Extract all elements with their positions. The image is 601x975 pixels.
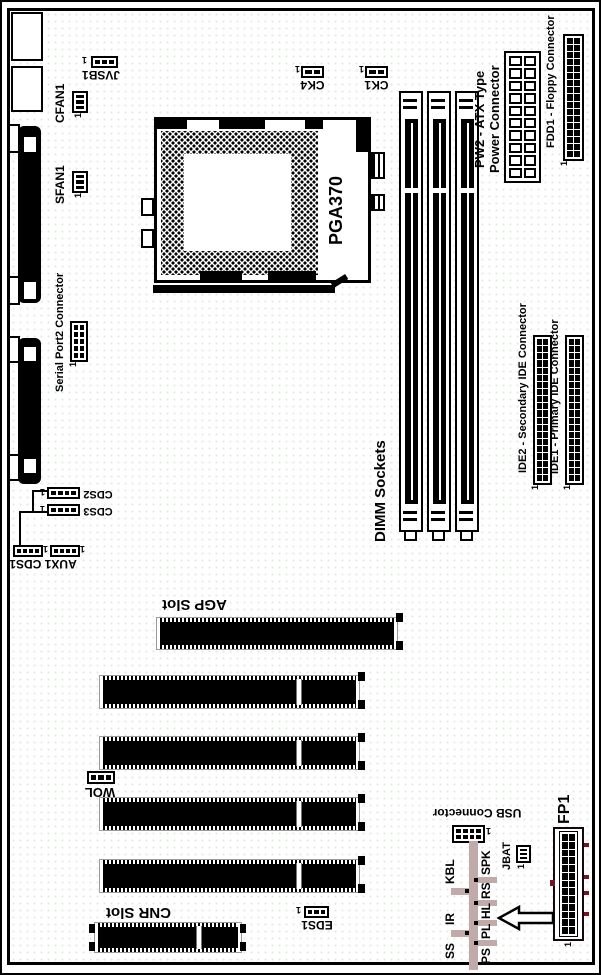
serial-port2-header [70,321,88,362]
wol-header [87,771,115,784]
serial-port2-pin1-marker: 1 [69,362,78,367]
socket-tab [305,117,323,129]
ide1-connector [565,335,584,485]
eds1-label: EDS1 [299,918,335,931]
ck1-label: CK1 [363,78,390,91]
parallel-port [18,126,41,303]
socket-side-tab [371,152,385,179]
dimm-center-line [439,123,441,500]
dimm-clip [431,511,445,514]
ck4-header [301,66,324,78]
slot-endcap [240,924,246,933]
ck1-pin1-marker: 1 [359,64,364,73]
dimm-slot-2 [427,91,451,532]
fp-label-spk: SPK [480,845,496,880]
atx-power-connector [504,51,541,183]
slot-endcap [240,942,246,951]
slot-pins [103,680,356,704]
fp-table-tick [474,941,478,945]
slot-key-notch [296,679,302,705]
bracket-line [32,490,34,513]
ide1-pin1-marker: 1 [563,485,572,490]
socket-tab [356,118,369,152]
socket-tab [268,271,316,281]
fdd1-pin1-marker: 1 [560,161,569,166]
slot-endcap [358,700,365,709]
cfan1-label: CFAN1 [54,79,69,127]
slot-endcap [358,822,365,831]
usb-pin1-marker: 1 [486,826,491,835]
fdd1-connector [563,34,584,161]
slot-endcap [358,761,365,770]
aux1-cds1-label: AUX1 CDS1 [1,557,85,570]
dimm-clip [403,99,417,102]
ide2-label: IDE2 - Secondary IDE Connector [518,294,533,482]
fp1-label: FP1 [557,793,579,825]
jbat-label: JBAT [502,843,516,870]
socket-tab [200,271,242,281]
slot-endcap [89,924,95,933]
slot-endcap [358,794,365,803]
pw2-label-line2: Power Connector [488,57,504,181]
dimm-center-line [411,123,413,500]
sfan1-header [72,171,88,193]
dimm-clip [459,99,473,102]
usb-connector-label: USB Connector [423,806,531,819]
sfan1-pin1-marker: 1 [74,193,83,198]
fp1-pin-grid [559,831,578,937]
sfan1-label: SFAN1 [54,161,69,209]
cnr-slot [94,922,242,953]
motherboard-layout-diagram: 1 JVSB1 1 CK4 1 CK1 CFAN1 1 SFAN1 1 Seri… [0,0,601,975]
jvsb1-pin1-marker: 1 [82,55,87,64]
jbat-pin1-marker: 1 [517,864,526,869]
slot-pins [103,741,356,765]
fp-label-pl: PL [480,921,496,942]
fp-label-ir: IR [444,905,459,933]
slot-endcap [89,942,95,951]
dimm-key-notch [431,188,447,193]
eds1-pin1-marker: 1 [296,905,301,914]
agp-slot-label: AGP Slot [156,595,233,612]
slot-pins [103,864,356,888]
ck4-label: CK4 [299,78,326,91]
slot-pins [98,927,238,948]
dimm-clip [431,99,445,102]
jvsb1-header [91,56,118,68]
dimm-clip [403,106,417,109]
slot-key-notch [196,926,202,949]
cds3-header [47,504,80,516]
fp-table-tick [474,878,478,882]
jvsb1-label: JVSB1 [79,68,123,81]
socket-tab [157,117,187,129]
serial-port2-label: Serial Port2 Connector [55,274,71,392]
ide1-label: IDE1 - Primary IDE Connector [550,312,565,482]
dimm-clip [459,511,473,514]
dimm-foot [460,530,473,541]
dimm-foot [432,530,445,541]
fp-table-tick [474,921,478,925]
pci-slot-3 [99,797,360,831]
dimm-slot-1 [399,91,423,532]
slot-endcap [358,856,365,865]
port-notch [24,347,36,361]
aux1-pin1-marker: 1 [80,544,85,553]
jbat-header [516,845,531,863]
ps2-port-2 [11,66,43,112]
cds2-label: CDS2 [82,486,114,499]
dimm-sockets-label: DIMM Sockets [373,434,394,548]
aux1-header [50,545,80,557]
fp-table-tick [465,931,469,935]
cds1-header [13,545,43,557]
fp-label-hl: HL [480,901,496,922]
socket-tab [219,117,265,129]
fp-label-ps: PS [480,942,496,970]
dimm-key-notch [403,188,419,193]
socket-side-tab [141,198,154,216]
slot-endcap [358,672,365,681]
slot-endcap [396,641,403,650]
agp-slot [156,617,398,650]
dimm-center-line [467,123,469,500]
ps2-port-1 [11,12,43,61]
cnr-slot-label: CNR Slot [95,902,182,920]
pga370-center-hole [184,154,291,251]
pci-slot-4 [99,859,360,893]
dimm-clip [459,518,473,521]
pci-slot-1 [99,675,360,709]
fp-table-divider [469,841,478,970]
slot-key-notch [296,863,302,889]
fp1-pin1-marker: 1 [564,942,573,947]
pga370-label: PGA370 [327,148,355,273]
slot-endcap [396,613,403,622]
socket-lever [153,285,335,293]
left-arrow-icon [497,904,555,932]
port-notch [24,282,36,299]
fdd1-label: FDD1 - Floppy Connector [546,13,562,151]
fp1-accent-mark [584,843,589,847]
fp-table-tick [474,901,478,905]
slot-endcap [358,884,365,893]
fp1-accent-mark [584,891,589,895]
slot-endcap [358,733,365,742]
fp1-accent-mark [550,880,555,886]
fp1-accent-mark [584,875,589,879]
slot-key-notch [296,740,302,766]
ck1-header [365,66,388,78]
bracket-line [32,511,47,513]
dimm-clip [431,518,445,521]
eds1-header [304,906,329,918]
port-notch [24,459,36,473]
socket-side-tab [141,229,154,248]
fp-label-rs: RS [480,880,496,902]
dimm-clip [403,518,417,521]
socket-side-tab [371,194,385,211]
dimm-foot [404,530,417,541]
ck4-pin1-marker: 1 [295,64,300,73]
cds2-header [47,487,80,499]
ide2-pin1-marker: 1 [531,485,540,490]
cfan1-header [72,91,88,113]
port-notch [24,137,36,152]
slot-pins [160,622,394,645]
fp1-accent-mark [584,912,589,916]
dimm-clip [431,106,445,109]
slot-pins [103,802,356,826]
fp-label-kbl: KBL [444,854,459,890]
bracket-line [19,511,21,547]
slot-key-notch [296,801,302,827]
cds3-label: CDS3 [82,503,114,516]
dimm-key-notch [459,188,475,193]
cds1-pin1-marker: 1 [43,544,48,553]
bracket-line [32,490,47,492]
dimm-clip [403,511,417,514]
fp-table-tick [465,889,469,893]
dimm-clip [459,106,473,109]
pci-slot-2 [99,736,360,770]
fp-label-ss: SS [444,937,459,964]
cfan1-pin1-marker: 1 [74,113,83,118]
